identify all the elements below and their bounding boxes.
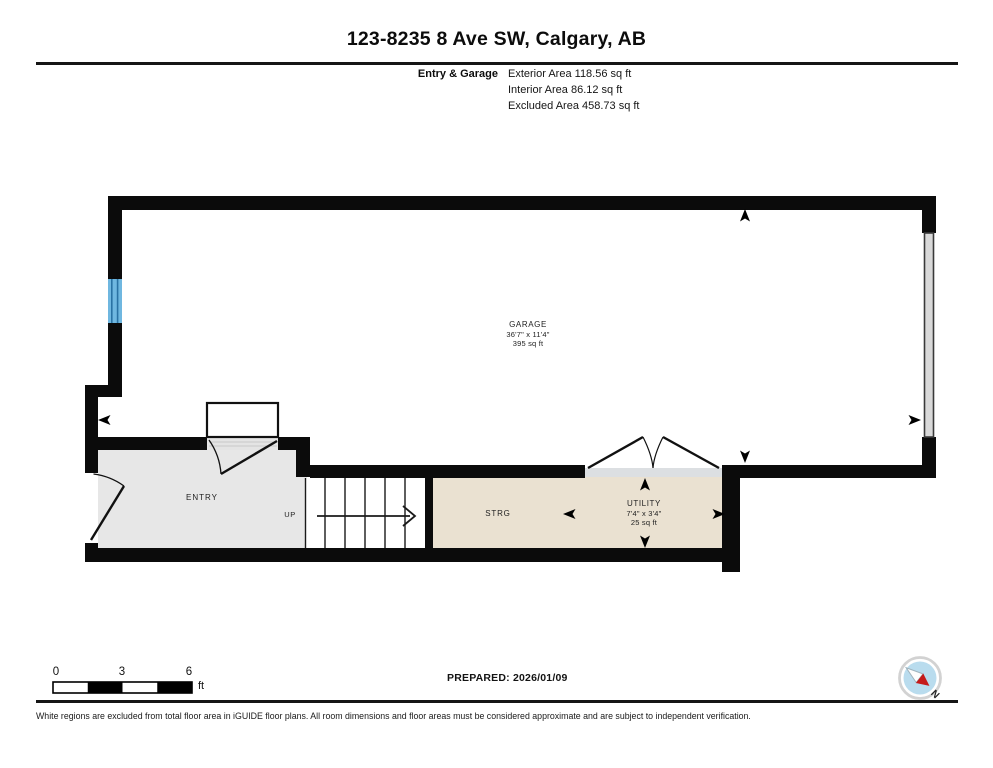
window-icon — [108, 279, 122, 323]
utility-door-threshold — [585, 468, 722, 477]
utility-dimensions: 7'4" x 3'4" — [594, 509, 694, 519]
prepared-date-label: PREPARED: 2026/01/09 — [447, 672, 568, 684]
wall-bottom — [85, 548, 740, 562]
garage-name: GARAGE — [428, 320, 628, 330]
scale-unit-label: ft — [198, 680, 204, 692]
compass-icon: N — [900, 658, 942, 702]
scale-bar-segment — [157, 682, 192, 693]
garage-dim-arrow-left — [98, 415, 111, 425]
garage-window — [108, 279, 122, 323]
wall-right-top-block — [922, 196, 936, 233]
garage-area: 395 sq ft — [428, 339, 628, 349]
wall-stairs-right — [425, 478, 433, 552]
utility-area: 25 sq ft — [594, 518, 694, 528]
garage-overhead-door-icon — [925, 233, 934, 437]
wall-entry-north-a — [98, 437, 207, 450]
footer-divider — [36, 700, 958, 703]
garage-dim-arrow-down — [740, 451, 750, 464]
scale-tick-6: 6 — [181, 666, 197, 678]
garage-dimensions: 36'7" x 11'4" — [428, 330, 628, 340]
door-swing-arc — [653, 437, 663, 468]
storage-room-label: STRG — [468, 509, 528, 519]
wall-step — [296, 450, 310, 477]
door-leaf-right — [663, 437, 719, 468]
scale-tick-3: 3 — [114, 666, 130, 678]
wall-left-upper-a — [108, 196, 122, 279]
garage-dim-arrow-right — [909, 415, 922, 425]
scale-tick-0: 0 — [48, 666, 64, 678]
wall-garage-south-a — [310, 465, 585, 478]
garage-dim-arrow-up — [740, 209, 750, 222]
wall-entry-north-b — [278, 437, 310, 450]
entry-room-label: ENTRY — [152, 493, 252, 503]
door-swing-arc — [643, 437, 653, 468]
stairs-up-label: UP — [275, 510, 305, 520]
floor-plan-canvas: N — [0, 0, 993, 768]
utility-room-label: UTILITY 7'4" x 3'4" 25 sq ft — [594, 499, 694, 528]
wall-left-lower-a — [85, 385, 98, 473]
door-leaf-left — [588, 437, 643, 468]
wall-garage-south-b — [722, 465, 936, 478]
scale-bar — [53, 682, 192, 693]
scale-bar-segment — [88, 682, 123, 693]
garage-room-label: GARAGE 36'7" x 11'4" 395 sq ft — [428, 320, 628, 349]
door-leaf-rect — [207, 403, 278, 437]
disclaimer-text: White regions are excluded from total fl… — [36, 711, 966, 721]
utility-double-door-icon — [588, 437, 719, 468]
wall-utility-right — [722, 465, 740, 572]
floorplan-page: 123-8235 8 Ave SW, Calgary, AB Entry & G… — [0, 0, 993, 768]
utility-name: UTILITY — [594, 499, 694, 509]
wall-top — [108, 196, 936, 210]
